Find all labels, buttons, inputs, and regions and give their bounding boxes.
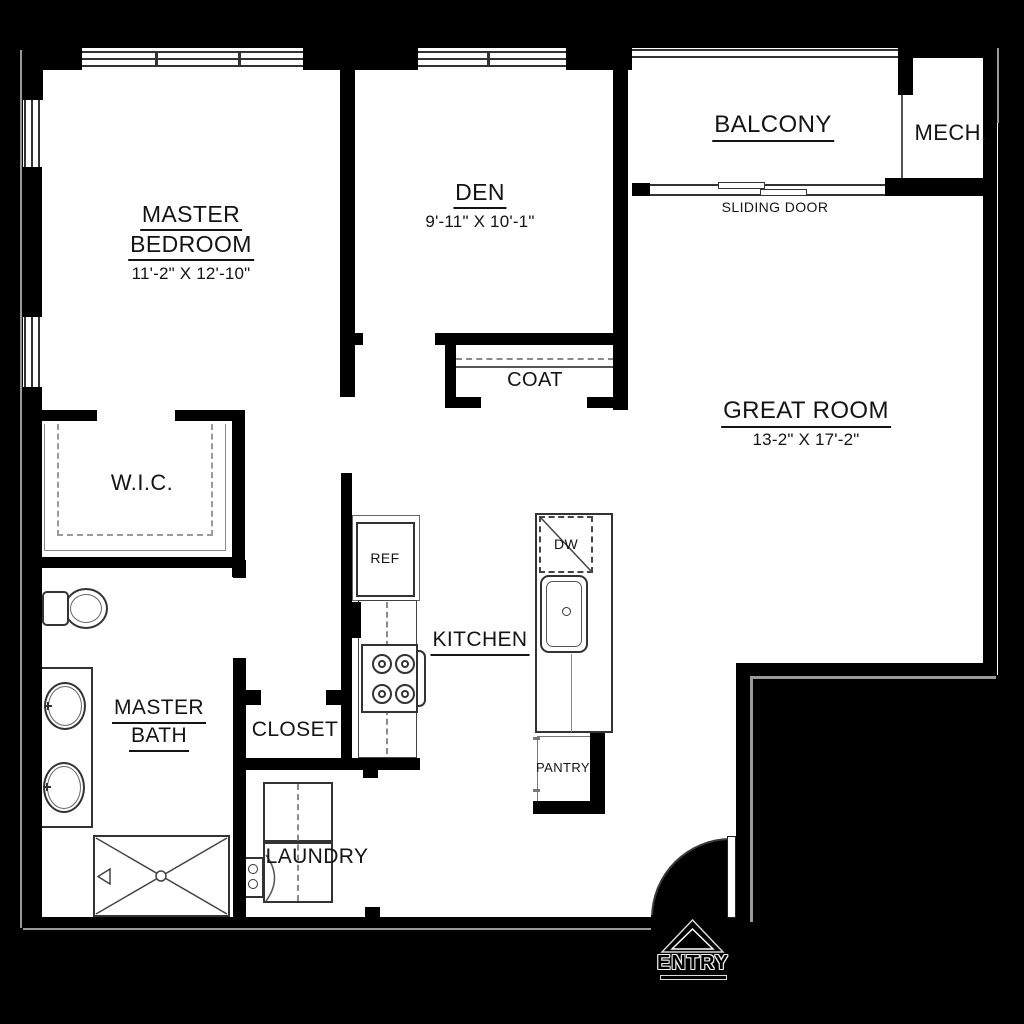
wall <box>23 917 651 928</box>
vanity-sink-inner <box>47 766 81 809</box>
label-master-bedroom-dims: 11'-2" X 12'-10" <box>128 264 254 284</box>
wall-kitchen-west <box>341 473 352 770</box>
entry-arrow-inner-icon <box>672 929 713 949</box>
coat-shelf <box>456 366 614 368</box>
pantry-jamb <box>533 789 540 792</box>
island-centerline <box>571 654 572 732</box>
wall-nub <box>352 602 361 638</box>
label-laundry-title: LAUNDRY <box>266 845 369 868</box>
window-mullion <box>155 51 158 67</box>
label-great-room: GREAT ROOM 13-2" X 17'-2" <box>721 397 891 450</box>
label-coat-title: COAT <box>507 369 563 391</box>
outer-face-line <box>23 928 651 930</box>
label-balcony-title: BALCONY <box>712 111 834 142</box>
label-den-title: DEN <box>453 179 507 209</box>
coat-rod <box>456 358 614 360</box>
label-laundry: LAUNDRY <box>266 845 369 870</box>
wall-coat-bottom <box>445 397 481 408</box>
label-wic-title: W.I.C. <box>111 470 173 495</box>
laundry-knob-icon <box>248 879 258 889</box>
wall <box>23 387 42 928</box>
wall-kitchen-bottom <box>233 758 420 770</box>
window-mullion <box>487 51 490 67</box>
label-sliding-door-text: SLIDING DOOR <box>722 199 829 215</box>
wall-closet-jamb <box>326 690 341 705</box>
mech-partition-line <box>901 95 903 178</box>
wall-balcony-mech-divider <box>898 48 913 95</box>
stove-burner <box>372 684 392 704</box>
label-pantry-title: PANTRY <box>536 760 590 775</box>
wall <box>23 167 42 317</box>
sink-drain-icon <box>562 607 571 616</box>
label-master-bedroom-line2: BEDROOM <box>128 231 254 261</box>
label-den-dims: 9'-11" X 10'-1" <box>425 212 534 232</box>
toilet-tank <box>42 591 69 626</box>
label-master-bedroom-line1: MASTER <box>140 201 242 231</box>
window-mullion <box>238 51 241 67</box>
outer-face-line <box>753 676 996 679</box>
window <box>24 100 40 167</box>
vanity-sink-inner <box>48 686 82 726</box>
label-great-room-dims: 13-2" X 17'-2" <box>721 430 891 450</box>
sliding-door-panel <box>760 189 807 196</box>
label-kitchen-title: KITCHEN <box>431 628 530 656</box>
wall-nub <box>355 333 363 345</box>
entry-door-leaf <box>727 836 736 918</box>
entry-threshold <box>651 915 736 928</box>
label-wic: W.I.C. <box>111 470 173 496</box>
faucet-icon <box>47 702 49 710</box>
entry-underline <box>661 976 726 979</box>
faucet-icon <box>46 783 48 791</box>
wall-coat-bottom <box>587 397 627 408</box>
balcony-railing <box>632 49 898 58</box>
label-kitchen: KITCHEN <box>431 628 530 656</box>
wall <box>736 663 750 928</box>
wall-wic-top <box>27 410 97 421</box>
window <box>82 51 303 67</box>
wall-bath-door-jamb <box>233 560 246 578</box>
wall-sliding-door-jamb <box>632 183 650 196</box>
window <box>24 317 40 387</box>
wall-bath-east <box>233 658 246 917</box>
label-mech: MECH. <box>915 120 988 146</box>
floor-plan: MASTER BEDROOM 11'-2" X 12'-10" DEN 9'-1… <box>0 0 1024 1024</box>
wall-pantry-bottom <box>533 801 605 814</box>
label-ref: REF <box>370 550 399 567</box>
toilet-bowl-inner <box>70 594 102 623</box>
label-ref-text: REF <box>370 550 399 566</box>
label-dw-text: DW <box>554 536 578 552</box>
laundry-knob-icon <box>248 864 258 874</box>
wall-closet-jamb <box>246 690 261 705</box>
wall-wic-east <box>232 410 245 577</box>
label-balcony: BALCONY <box>712 111 834 142</box>
floor-main <box>23 48 998 675</box>
label-closet-title: CLOSET <box>252 718 338 741</box>
label-master-bath-line1: MASTER <box>112 696 206 724</box>
wall-pantry-east <box>590 733 605 803</box>
wall <box>736 663 996 676</box>
stove-burner <box>395 684 415 704</box>
wall-den-west <box>340 55 355 397</box>
outer-face-line <box>997 48 999 123</box>
wall-nub <box>365 907 380 917</box>
wall-wic-bottom <box>27 557 233 568</box>
label-master-bath: MASTER BATH <box>112 696 206 752</box>
label-entry-text: ENTRY <box>657 952 729 974</box>
laundry-centerline <box>297 784 299 901</box>
pantry-jamb <box>533 737 540 740</box>
label-closet: CLOSET <box>252 718 338 743</box>
stove-burner <box>395 654 415 674</box>
label-master-bath-line2: BATH <box>129 724 189 752</box>
wall-coat-top <box>435 333 613 345</box>
window <box>418 51 566 67</box>
stove-burner <box>372 654 392 674</box>
shower <box>93 835 230 917</box>
wall <box>23 48 43 100</box>
label-master-bedroom: MASTER BEDROOM 11'-2" X 12'-10" <box>128 201 254 284</box>
wall-nub <box>363 770 378 778</box>
wall <box>303 48 418 70</box>
sliding-door-panel <box>718 182 765 189</box>
label-coat: COAT <box>507 369 563 393</box>
label-great-room-title: GREAT ROOM <box>721 397 891 428</box>
wall <box>885 178 985 196</box>
label-entry: ENTRY <box>657 952 729 975</box>
label-pantry: PANTRY <box>536 760 590 775</box>
label-dw: DW <box>554 536 578 553</box>
label-sliding-door: SLIDING DOOR <box>722 199 829 216</box>
outer-face-line <box>20 50 22 928</box>
wall-den-east <box>613 48 628 410</box>
label-mech-title: MECH. <box>915 120 988 145</box>
label-den: DEN 9'-11" X 10'-1" <box>425 179 534 232</box>
outer-face-line <box>750 676 753 922</box>
